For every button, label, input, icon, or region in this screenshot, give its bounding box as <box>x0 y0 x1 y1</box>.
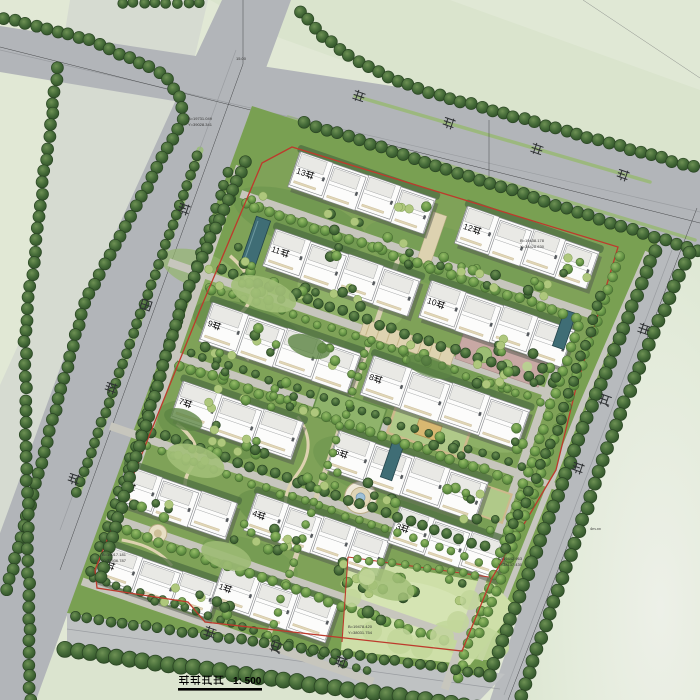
svg-text:15.00: 15.00 <box>236 56 247 61</box>
svg-text:B=19442.963: B=19442.963 <box>498 556 523 561</box>
svg-text:B=19731.049: B=19731.049 <box>188 116 213 121</box>
svg-text:Y=39028.341: Y=39028.341 <box>188 122 213 127</box>
svg-text:Y=37936.787: Y=37936.787 <box>102 558 127 563</box>
svg-text:B=19017.181: B=19017.181 <box>102 552 127 557</box>
svg-text:4m-xx: 4m-xx <box>590 526 601 531</box>
svg-text:B=19438.178: B=19438.178 <box>520 238 545 243</box>
svg-text:Y=38137.430: Y=38137.430 <box>498 562 523 567</box>
svg-text:Y=38428.630: Y=38428.630 <box>520 244 545 249</box>
svg-text:1: 500: 1: 500 <box>233 676 262 687</box>
svg-text:B=19478.420: B=19478.420 <box>348 624 373 629</box>
svg-text:Y=38031.754: Y=38031.754 <box>348 630 373 635</box>
